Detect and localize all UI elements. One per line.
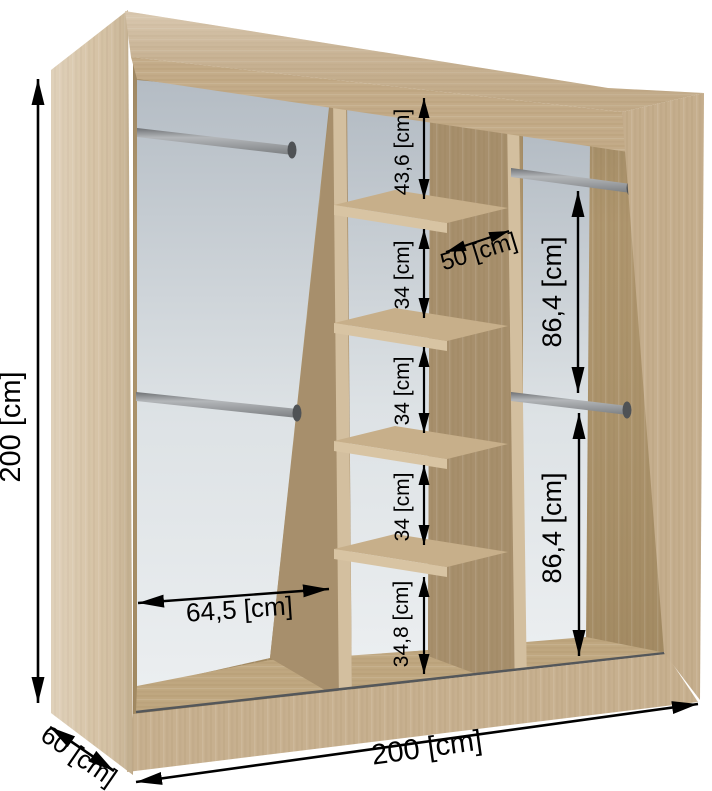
dim-middle-bottom-gap-label: 34,8 [cm] [390, 581, 413, 667]
dim-height: 200 [cm] [0, 79, 38, 703]
back-panel-middle [344, 102, 430, 658]
rail-end-cap [293, 405, 302, 422]
left-panel-shading [51, 10, 133, 775]
dim-right-lower-gap-label: 86,4 [cm] [537, 472, 567, 583]
wardrobe-diagram: 200 [cm] 200 [cm] 60 [cm] 43,6 [cm] 34 [… [0, 0, 712, 791]
dim-middle-gap-2-label: 34 [cm] [391, 357, 414, 426]
dim-middle-gap-3-label: 34 [cm] [391, 473, 414, 542]
dim-right-upper-gap-label: 86,4 [cm] [537, 236, 567, 347]
rail-end-cap [288, 142, 297, 159]
rail-end-cap [623, 402, 632, 419]
partition-right-grain [428, 108, 519, 690]
dim-height-label: 200 [cm] [0, 371, 27, 482]
dim-middle-top-gap-label: 43,6 [cm] [391, 109, 414, 195]
dim-middle-gap-1-label: 34 [cm] [391, 241, 414, 310]
wardrobe-diagram-canvas: 200 [cm] 200 [cm] 60 [cm] 43,6 [cm] 34 [… [0, 0, 712, 791]
